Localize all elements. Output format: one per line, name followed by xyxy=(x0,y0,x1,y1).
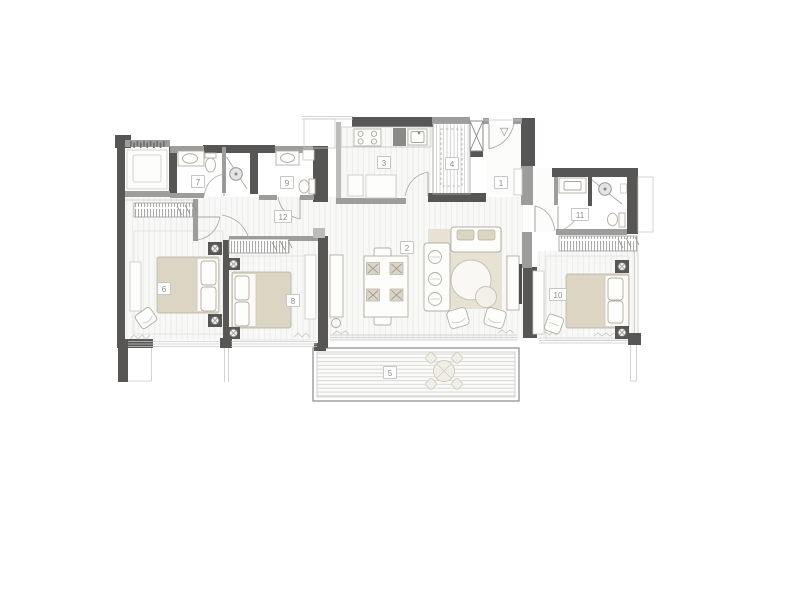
pillow xyxy=(608,301,623,323)
pillow xyxy=(201,287,216,311)
room-label-10: 10 xyxy=(549,288,567,301)
side-cabinet xyxy=(330,255,343,328)
toilet-tank-icon xyxy=(309,179,315,194)
toilet-bowl-icon xyxy=(608,213,618,226)
dresser xyxy=(130,262,141,311)
bathroom-11-fixtures xyxy=(559,178,627,227)
nightstand-lamp-icon xyxy=(227,327,240,339)
nightstand-lamp-icon xyxy=(208,314,222,327)
dining-set xyxy=(364,248,408,325)
pillow xyxy=(235,276,249,300)
bathroom-7-fixtures xyxy=(178,151,216,172)
room-label-8: 8 xyxy=(286,294,300,307)
duct-shaft xyxy=(470,121,483,151)
room-label-12: 12 xyxy=(274,210,292,223)
pillow xyxy=(235,302,249,326)
toilet-tank-icon xyxy=(619,213,625,227)
washer xyxy=(127,150,167,189)
toilet-tank-icon xyxy=(205,153,216,158)
room-label-1: 1 xyxy=(494,176,508,189)
nightstand-lamp-icon xyxy=(208,242,222,255)
tv-icon xyxy=(519,264,522,304)
entry-direction-icon: ▽ xyxy=(500,127,508,138)
room-label-2: 2 xyxy=(400,241,414,254)
nightstand-lamp-icon xyxy=(615,260,629,273)
room-label-5: 5 xyxy=(383,366,397,379)
shower-7 xyxy=(227,157,248,189)
room-label-9: 9 xyxy=(280,176,294,189)
shoe-cabinet xyxy=(514,169,522,195)
room-label-3: 3 xyxy=(377,156,391,169)
toilet-bowl-icon xyxy=(299,180,309,193)
room-label-7: 7 xyxy=(191,175,205,188)
pillow xyxy=(608,278,623,300)
tv-console xyxy=(507,256,522,310)
side-table xyxy=(476,287,497,308)
dresser xyxy=(533,271,544,334)
pillow xyxy=(201,261,216,285)
nightstand-lamp-icon xyxy=(615,326,629,339)
floor-plan-drawing xyxy=(0,0,800,600)
dresser xyxy=(305,255,316,319)
toilet-bowl-icon xyxy=(206,158,216,172)
nightstand-lamp-icon xyxy=(227,258,240,270)
shaft-panel xyxy=(638,177,653,232)
room-label-11: 11 xyxy=(571,208,589,221)
room-label-6: 6 xyxy=(157,282,171,295)
room-label-4: 4 xyxy=(445,157,459,170)
balcony-deck xyxy=(313,348,519,401)
water-heater-icon xyxy=(303,150,314,160)
floor-plan-canvas: 1 2 3 4 5 6 7 8 9 10 11 12 ▽ xyxy=(0,0,800,600)
hob-icon xyxy=(393,128,406,146)
